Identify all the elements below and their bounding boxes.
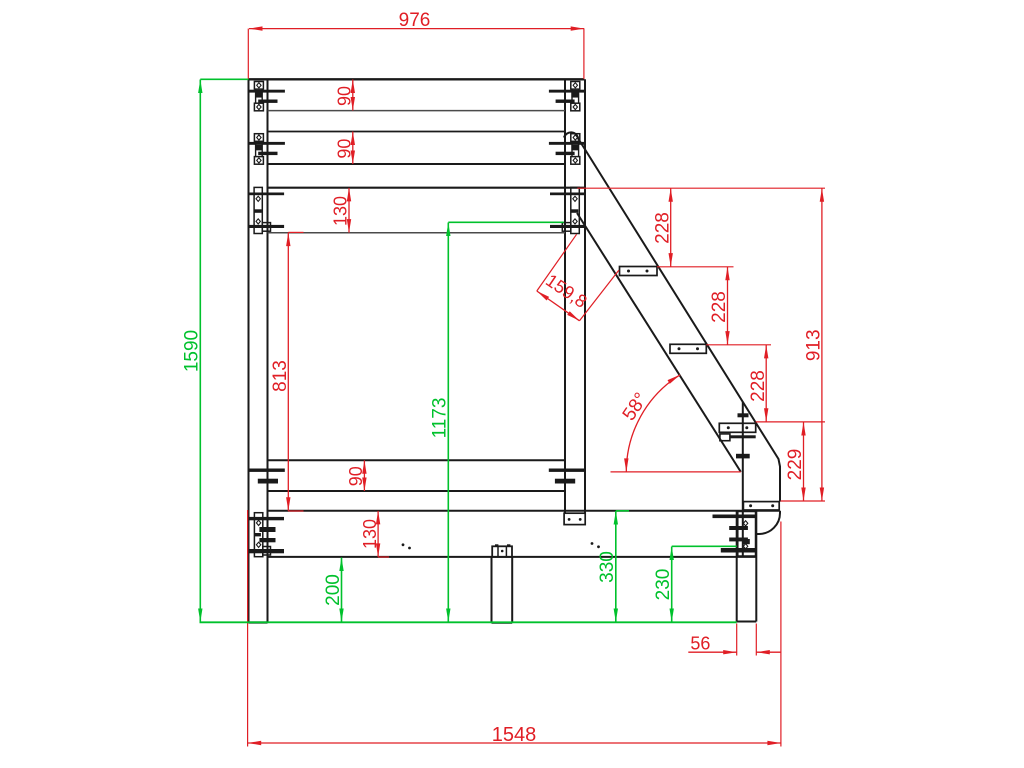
- svg-text:130: 130: [331, 196, 351, 226]
- svg-text:90: 90: [335, 86, 355, 106]
- svg-text:1590: 1590: [182, 330, 203, 372]
- svg-text:228: 228: [709, 291, 730, 323]
- svg-text:913: 913: [804, 329, 825, 361]
- svg-text:200: 200: [323, 574, 344, 606]
- svg-text:976: 976: [399, 10, 431, 31]
- svg-text:813: 813: [270, 360, 291, 392]
- svg-text:228: 228: [748, 370, 769, 402]
- svg-text:229: 229: [785, 449, 806, 481]
- svg-text:230: 230: [653, 569, 674, 601]
- svg-text:56: 56: [690, 634, 710, 654]
- svg-text:90: 90: [346, 466, 366, 486]
- svg-text:1548: 1548: [492, 724, 537, 746]
- svg-text:1173: 1173: [430, 398, 451, 439]
- svg-text:228: 228: [652, 212, 673, 244]
- svg-text:330: 330: [597, 551, 618, 583]
- svg-text:90: 90: [335, 139, 355, 159]
- svg-text:130: 130: [360, 519, 380, 549]
